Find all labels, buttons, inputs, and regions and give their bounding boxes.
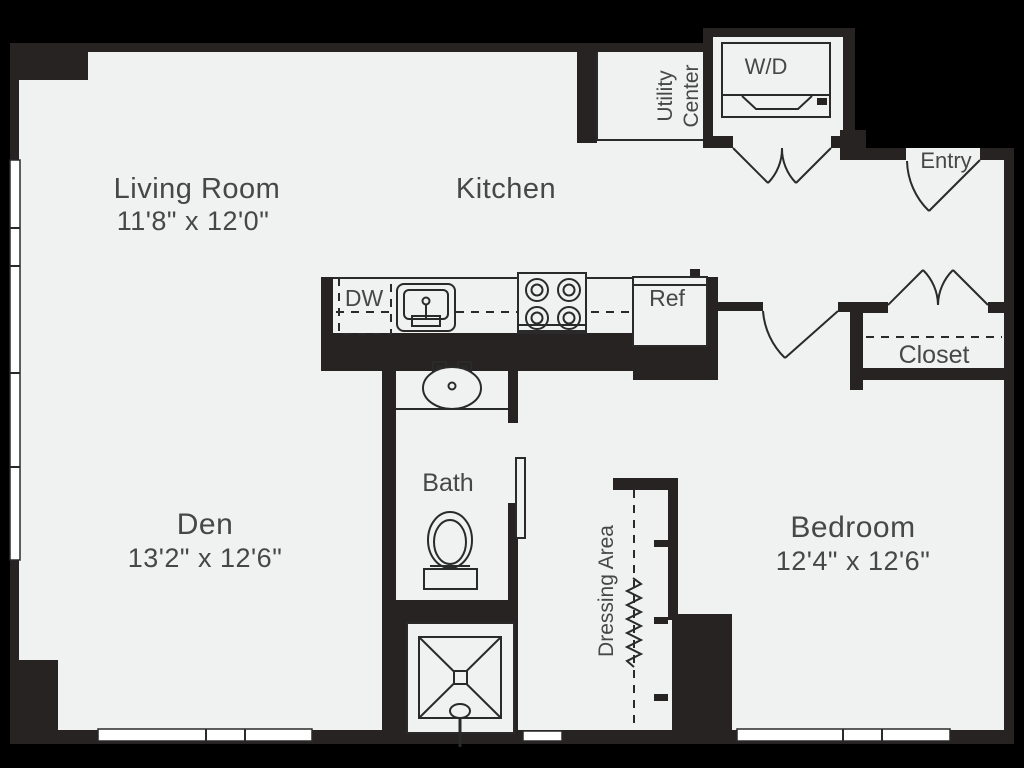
den-label: Den <box>177 508 234 541</box>
entry-label: Entry <box>920 148 971 173</box>
bath-label: Bath <box>422 469 473 497</box>
dishwasher-label: DW <box>345 285 384 311</box>
bedroom-dims: 12'4" x 12'6" <box>776 546 931 576</box>
wall-segment <box>633 347 718 380</box>
bedroom-label: Bedroom <box>790 511 915 544</box>
wall-segment <box>718 302 763 311</box>
bath-pocket-door <box>516 458 525 538</box>
shower-drain <box>454 671 467 684</box>
wall-segment <box>321 277 333 371</box>
wall-tick <box>654 617 668 624</box>
window-small <box>523 731 562 741</box>
wall-tick <box>654 694 668 701</box>
wall-segment <box>1004 148 1014 744</box>
wall-segment <box>508 333 518 423</box>
wall-segment <box>668 478 678 620</box>
ref-handle <box>690 269 700 277</box>
floor-bedroom-hall <box>518 340 1004 730</box>
wall-segment <box>850 368 1004 380</box>
living-room-label: Living Room <box>114 173 281 205</box>
wd-button <box>817 98 827 105</box>
window-left <box>10 160 20 560</box>
vanity-basin <box>423 367 481 409</box>
shower-head <box>450 704 470 718</box>
wall-segment <box>382 333 518 362</box>
refrigerator-label: Ref <box>649 285 685 311</box>
wall-tick <box>654 540 668 547</box>
wall-segment <box>703 28 855 37</box>
stove-icon <box>518 273 586 333</box>
utility-center-label-line1: Utility <box>654 70 677 122</box>
wall-segment <box>988 302 1004 313</box>
wall-segment <box>672 614 732 737</box>
closet-label: Closet <box>899 341 970 369</box>
utility-center-label-line2: Center <box>680 64 703 127</box>
washer-dryer-label: W/D <box>745 54 788 79</box>
wall-segment <box>703 28 713 148</box>
kitchen-label: Kitchen <box>456 173 556 205</box>
wall-segment <box>577 43 597 143</box>
floor-plan: Living Room 11'8" x 12'0" Kitchen Den 13… <box>0 0 1024 768</box>
toilet-tank <box>424 569 477 589</box>
dressing-area-label: Dressing Area <box>595 525 618 657</box>
den-dims: 13'2" x 12'6" <box>128 543 283 573</box>
wall-segment <box>863 302 888 313</box>
wall-segment <box>703 136 733 148</box>
wall-segment <box>855 148 906 160</box>
wall-segment <box>382 333 396 744</box>
kitchen-sink-icon <box>397 284 455 331</box>
shower-icon <box>407 623 514 747</box>
living-room-dims: 11'8" x 12'0" <box>117 206 270 236</box>
wall-segment <box>707 277 718 347</box>
wall-segment <box>10 43 713 52</box>
